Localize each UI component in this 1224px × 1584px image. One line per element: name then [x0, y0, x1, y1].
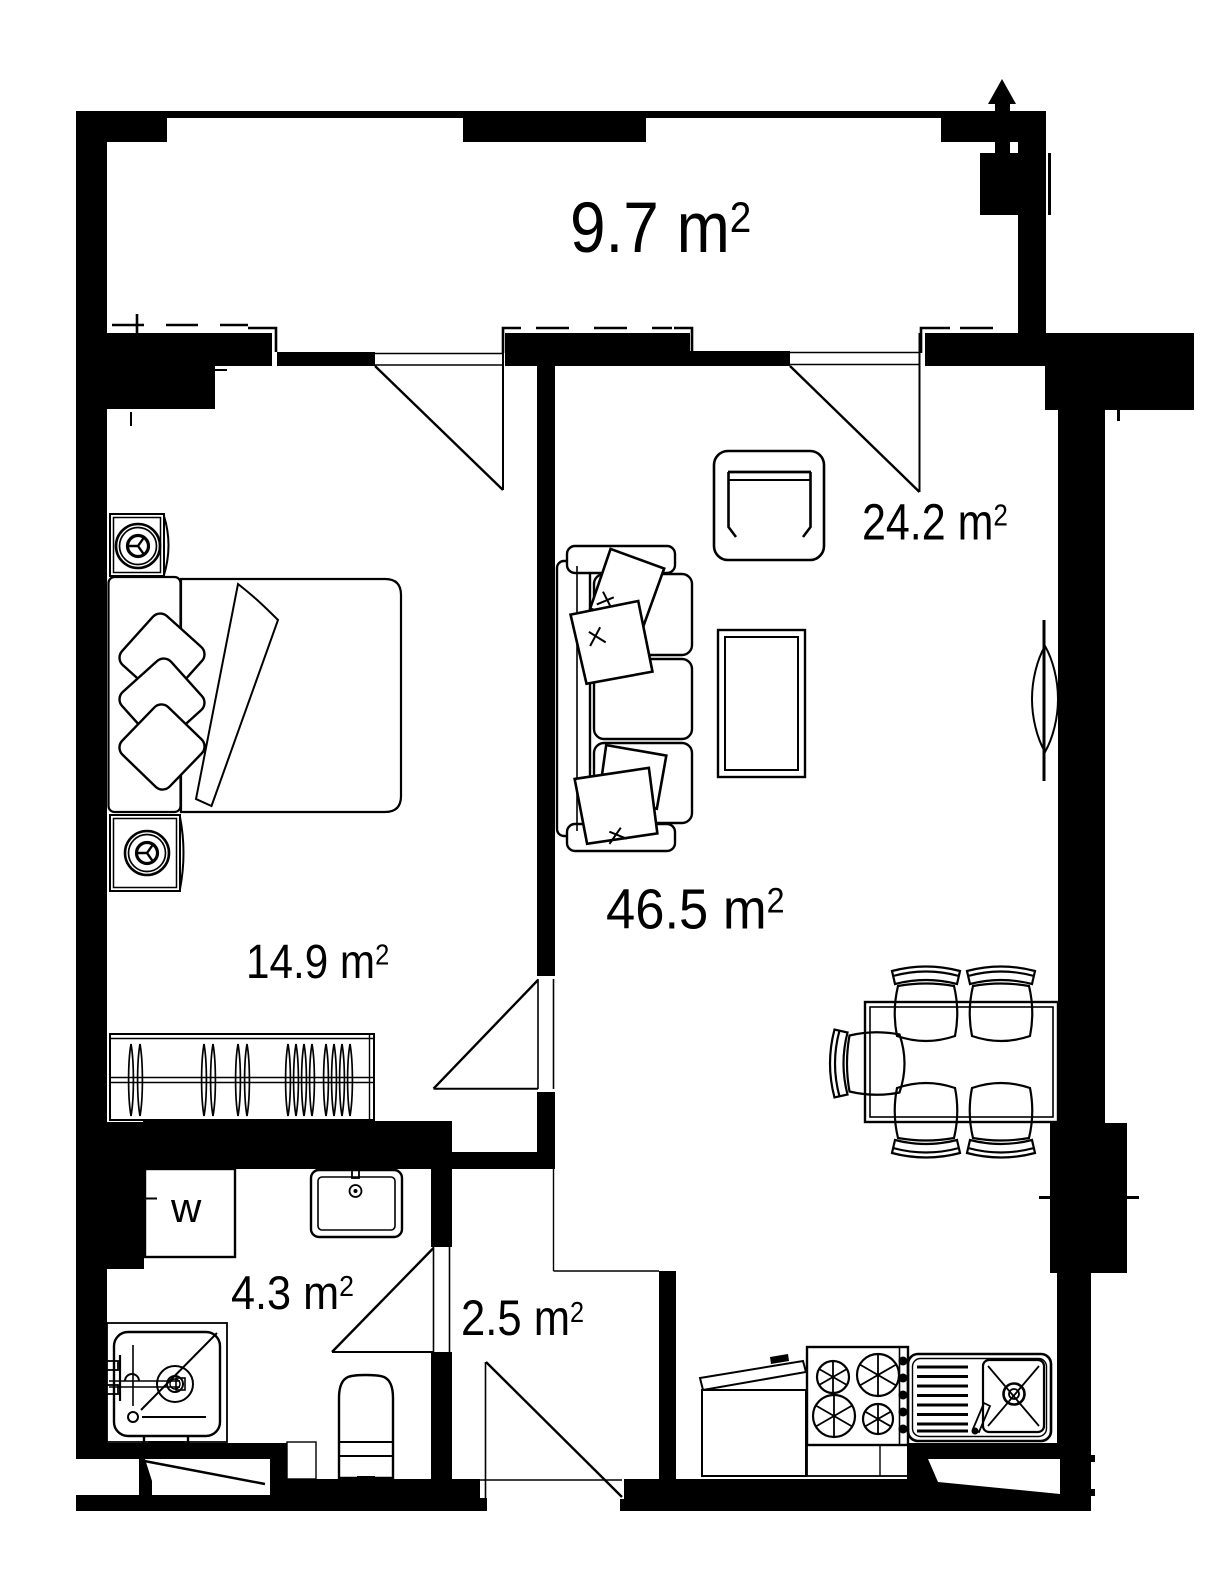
svg-text:14.9 m2: 14.9 m2	[246, 934, 389, 988]
svg-text:w: w	[170, 1184, 202, 1231]
svg-text:4.3 m2: 4.3 m2	[231, 1266, 354, 1319]
svg-text:46.5 m2: 46.5 m2	[606, 877, 785, 941]
svg-text:2.5 m2: 2.5 m2	[461, 1290, 584, 1345]
svg-text:9.7 m2: 9.7 m2	[570, 189, 751, 268]
svg-text:24.2 m2: 24.2 m2	[862, 493, 1008, 550]
